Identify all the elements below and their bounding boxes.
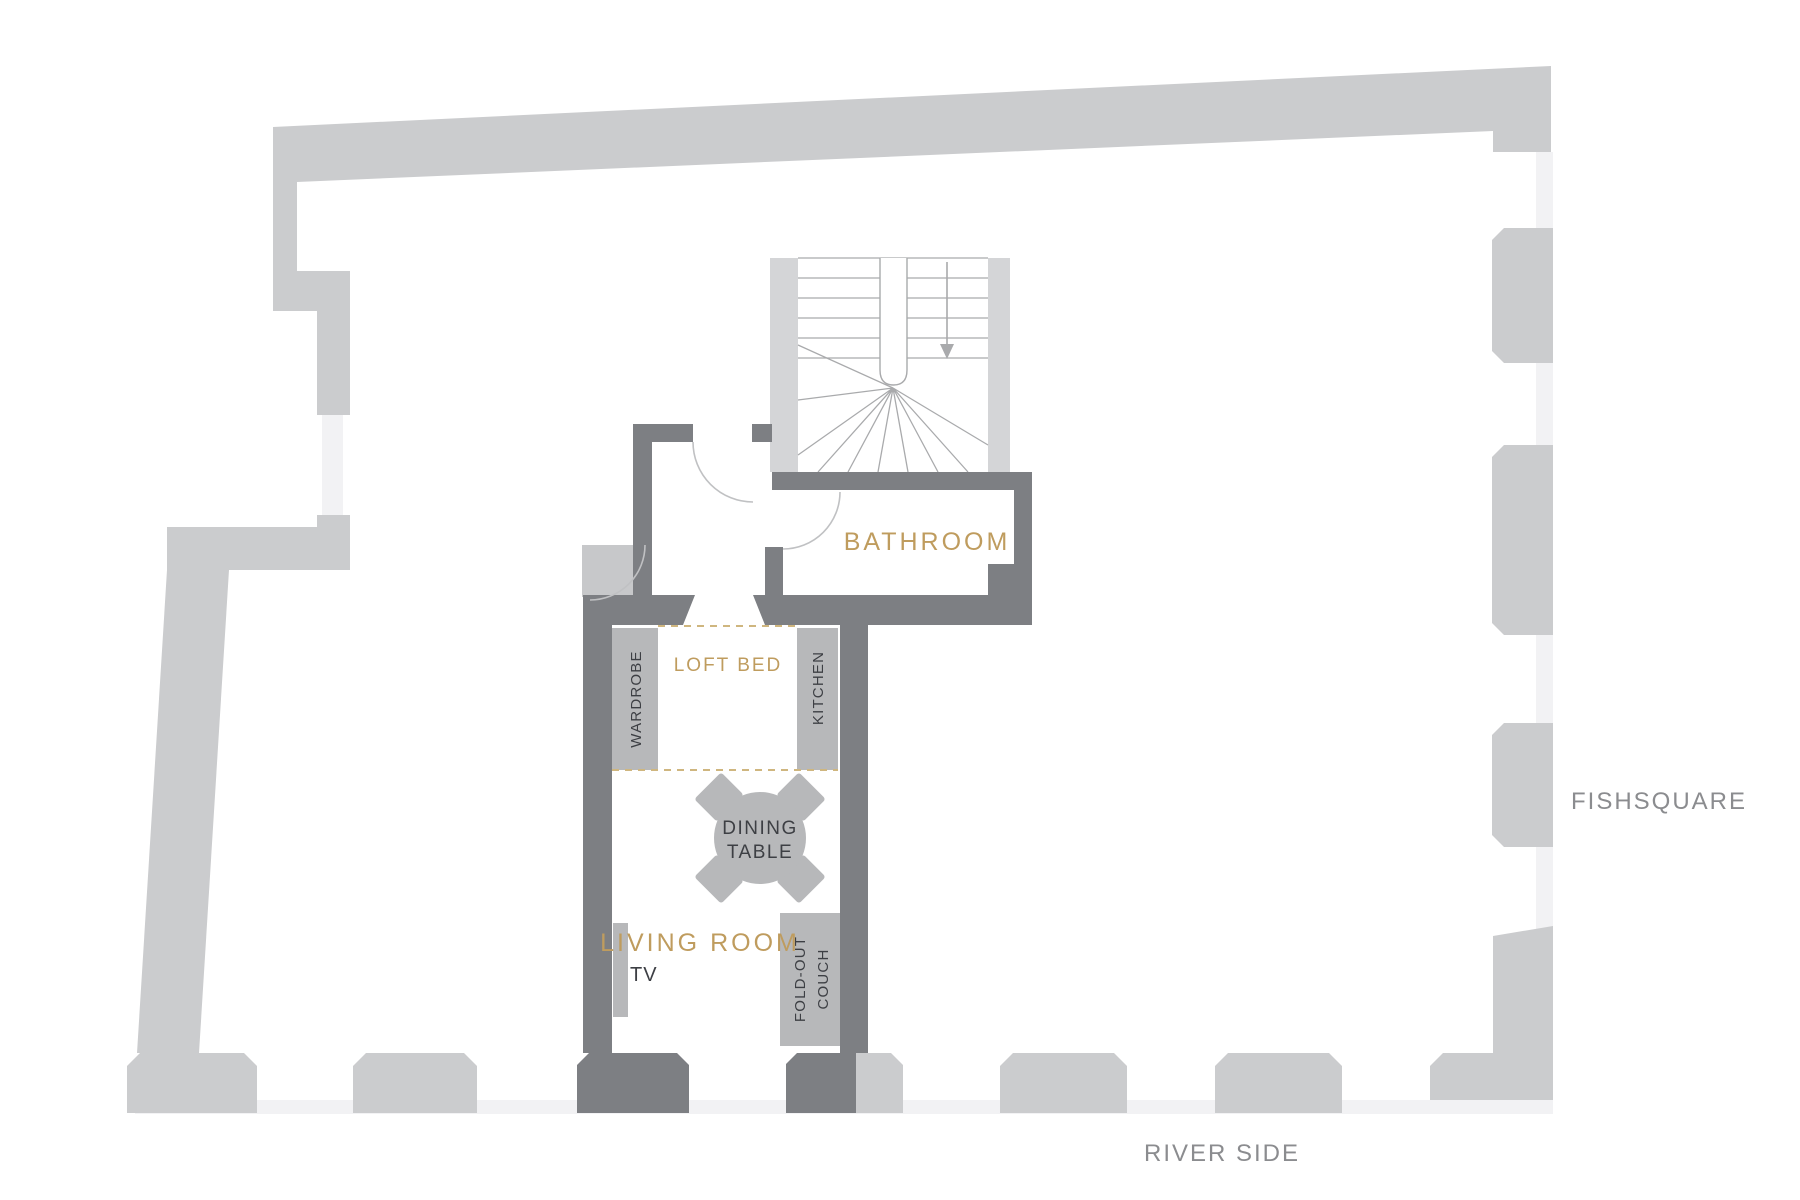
bottom-pier [856,1053,903,1113]
svg-text:DINING: DINING [722,818,798,839]
outer-wall-top [273,66,1551,182]
bottom-pier [1215,1053,1342,1113]
outer-wall-left-mid [317,309,350,415]
left-window [322,415,343,515]
street-label-fishsquare: FISHSQUARE [1571,788,1747,815]
stair-railing [880,258,907,385]
floor-plan: BATHROOM LOFT BED LIVING ROOM WARDROBE K… [0,0,1800,1200]
tv-label: TV [630,964,658,986]
right-wall-pier [1492,445,1553,635]
stairs-down-arrow-icon [940,262,954,359]
living-room-label: LIVING ROOM [600,929,800,957]
bottom-pier [353,1053,477,1113]
svg-text:COUCH: COUCH [815,949,832,1010]
stair-side-strip-left [770,258,798,472]
entry-door-swing [693,442,753,502]
apartment-wall-east [840,625,868,1053]
floor-plan-page: BATHROOM LOFT BED LIVING ROOM WARDROBE K… [0,0,1800,1200]
stair-side-strip-right [988,258,1010,472]
kitchen-label: KITCHEN [810,651,827,725]
right-wall-pier [1492,723,1553,847]
bottom-pier [127,1053,257,1113]
loft-wall-north-right [753,595,1032,625]
apartment-wall-west [583,595,612,1053]
wardrobe-label: WARDROBE [628,650,645,747]
staircase [770,258,1010,472]
bathroom-wall-notch [988,564,1032,597]
bottom-pier [1000,1053,1127,1113]
apartment-pier-southwest [577,1053,689,1113]
street-label-riverside: RIVER SIDE [1144,1140,1300,1167]
entry-wall-north-right [752,424,772,442]
bathroom-wall-north [772,472,1032,490]
right-wall-pier [1492,228,1553,363]
svg-text:TABLE: TABLE [727,842,793,863]
svg-text:FOLD-OUT: FOLD-OUT [792,936,809,1022]
outer-wall-left-diagonal [137,570,229,1053]
loft-bed-label: LOFT BED [674,655,783,676]
outer-wall-left-step [273,271,350,311]
bathroom-wall-west [765,547,783,597]
outer-wall-left-upper [273,127,297,273]
vestibule-light-block [582,545,633,597]
vestibule-west-wall [633,424,652,597]
bathroom-door-swing [783,492,840,549]
bathroom-label: BATHROOM [844,528,1011,556]
outer-wall-left-band [167,527,350,570]
apartment-pier-southeast [786,1053,856,1113]
